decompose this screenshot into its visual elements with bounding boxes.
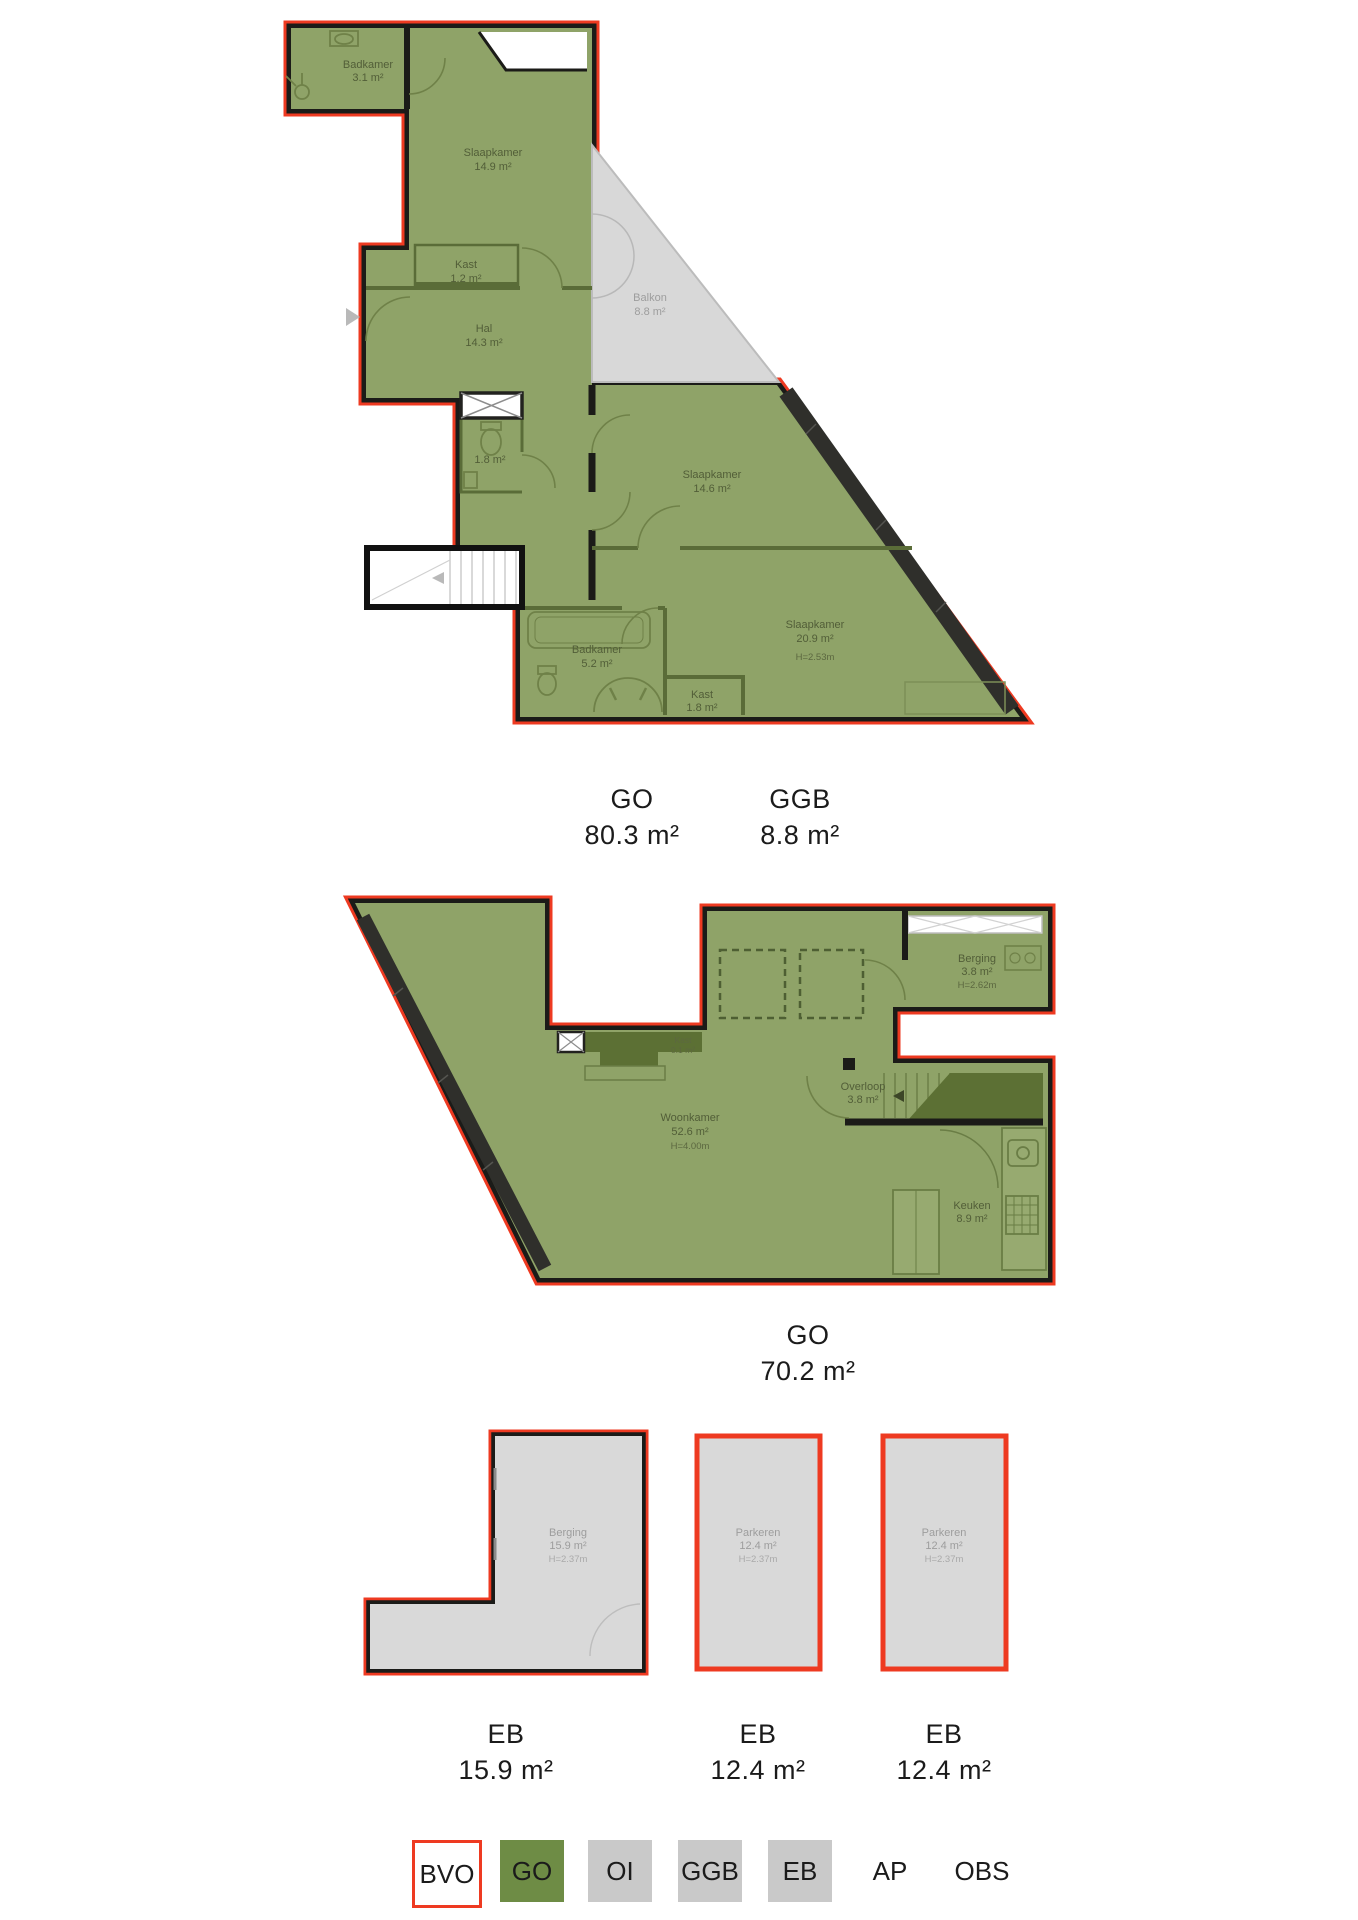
balcony-area (592, 145, 779, 382)
eb1-value: 15.9 m² (396, 1752, 616, 1788)
room-label-badkamer-bottom: Badkamer (572, 644, 622, 656)
floorplan-units: Berging 15.9 m² H=2.37m Parkeren 12.4 m²… (290, 1420, 1080, 1685)
unit3-area: 12.4 m² (925, 1540, 963, 1552)
plan1-ggb-value: 8.8 m² (690, 817, 910, 853)
balcony-fill (592, 145, 779, 382)
room-area-berging: 3.8 m² (961, 966, 993, 978)
legend-label-go: GO (512, 1856, 552, 1887)
room-area-woonkamer: 52.6 m² (671, 1126, 709, 1138)
floorplan-upper: Badkamer 3.1 m² Slaapkamer 14.9 m² Kast … (230, 10, 1080, 750)
room-label-badkamer-top: Badkamer (343, 59, 393, 71)
room-label-berging: Berging (958, 953, 996, 965)
unit2-name: Parkeren (736, 1527, 781, 1539)
stair-post (843, 1058, 855, 1070)
legend-label-oi: OI (606, 1856, 633, 1887)
unit1-area: 15.9 m² (549, 1540, 587, 1552)
room-height-slaapkamer3: H=2.53m (796, 652, 835, 663)
room-label-slaapkamer1: Slaapkamer (464, 147, 523, 159)
room-area-slaapkamer1: 14.9 m² (474, 161, 512, 173)
vide-rect (908, 916, 1042, 933)
legend-item-go: GO (500, 1840, 564, 1902)
room-label-kast1: Kast (455, 259, 477, 271)
island-bump (600, 1052, 658, 1066)
room-area-slaapkamer2: 14.6 m² (693, 483, 731, 495)
legend-label-eb: EB (783, 1856, 818, 1887)
eb3-value: 12.4 m² (834, 1752, 1054, 1788)
room-area-badkamer-top: 3.1 m² (352, 72, 384, 84)
island-table (585, 1066, 665, 1080)
legend-label-obs: OBS (955, 1856, 1010, 1887)
unit2-rect (697, 1436, 820, 1669)
stairwell (367, 548, 522, 607)
room-label-balkon: Balkon (633, 292, 667, 304)
door-gap2 (587, 492, 597, 530)
unit3-height: H=2.37m (925, 1554, 964, 1565)
room-label-overloop: Overloop (841, 1081, 886, 1093)
unit3-rect (883, 1436, 1006, 1669)
room-label-woonkamer: Woonkamer (660, 1112, 719, 1124)
room-label-slaapkamer2: Slaapkamer (683, 469, 742, 481)
unit1-height: H=2.37m (549, 1554, 588, 1565)
plan2-go-label: GO 70.2 m² (698, 1317, 918, 1389)
room-area-keuken: 8.9 m² (956, 1213, 988, 1225)
legend-item-ap: AP (858, 1840, 922, 1902)
legend-label-ap: AP (873, 1856, 908, 1887)
shaft-box (461, 393, 522, 418)
room-area-badkamer-bottom: 5.2 m² (581, 658, 613, 670)
legend-item-bvo: BVO (412, 1840, 482, 1908)
room-area-kast-small: 0.1 m² (671, 1045, 695, 1055)
room-area-balkon: 8.8 m² (634, 306, 666, 318)
plan1-ggb-code: GGB (690, 781, 910, 817)
eb3-label: EB 12.4 m² (834, 1716, 1054, 1788)
unit1-fill (370, 1436, 642, 1669)
plan1-ggb-label: GGB 8.8 m² (690, 781, 910, 853)
legend-item-obs: OBS (950, 1840, 1014, 1902)
stairwell-box (367, 548, 522, 607)
eb1-code: EB (396, 1716, 616, 1752)
floorplan-living: Berging 3.8 m² H=2.62m Kast 0.1 m² Overl… (280, 880, 1080, 1300)
unit-parkeren-2: Parkeren 12.4 m² H=2.37m (883, 1436, 1006, 1669)
room-area-overloop: 3.8 m² (847, 1094, 879, 1106)
room-label-kast2: Kast (691, 689, 713, 701)
room-label-keuken: Keuken (953, 1200, 990, 1212)
eb3-code: EB (834, 1716, 1054, 1752)
legend: BVO GO OI GGB EB AP OBS (0, 1840, 1358, 1902)
entrance-arrow-icon (346, 308, 360, 326)
legend-item-oi: OI (588, 1840, 652, 1902)
unit-parkeren-1: Parkeren 12.4 m² H=2.37m (697, 1436, 820, 1669)
room-area-kast2: 1.8 m² (686, 702, 718, 714)
vide-strip (908, 916, 1042, 933)
legend-label-ggb: GGB (681, 1856, 739, 1887)
unit2-area: 12.4 m² (739, 1540, 777, 1552)
unit1-name: Berging (549, 1527, 587, 1539)
unit-berging: Berging 15.9 m² H=2.37m (370, 1436, 642, 1669)
legend-item-eb: EB (768, 1840, 832, 1902)
room-area-toilet: 1.8 m² (474, 454, 506, 466)
room-area-hal: 14.3 m² (465, 337, 503, 349)
room-label-hal: Hal (476, 323, 493, 335)
plan2-go-value: 70.2 m² (698, 1353, 918, 1389)
legend-item-ggb: GGB (678, 1840, 742, 1902)
room-area-kast1: 1.2 m² (450, 273, 482, 285)
room-height-woonkamer: H=4.00m (671, 1141, 710, 1152)
room-height-berging: H=2.62m (958, 980, 997, 991)
room-label-kast-small: Kast (674, 1035, 692, 1045)
room-area-slaapkamer3: 20.9 m² (796, 633, 834, 645)
floorplan-sheet: Badkamer 3.1 m² Slaapkamer 14.9 m² Kast … (0, 0, 1358, 1920)
eb1-label: EB 15.9 m² (396, 1716, 616, 1788)
room-label-slaapkamer3: Slaapkamer (786, 619, 845, 631)
plan2-go-code: GO (698, 1317, 918, 1353)
legend-label-bvo: BVO (420, 1859, 475, 1890)
unit2-height: H=2.37m (739, 1554, 778, 1565)
unit3-name: Parkeren (922, 1527, 967, 1539)
